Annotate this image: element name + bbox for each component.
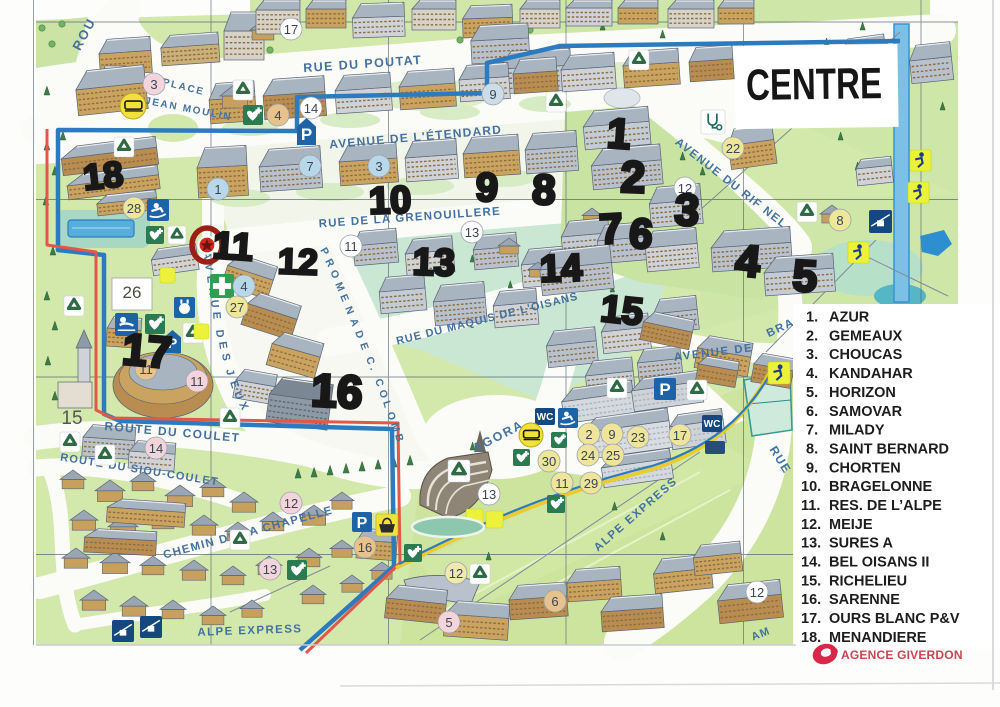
svg-text:2.: 2. (806, 328, 818, 344)
svg-text:17.: 17. (801, 611, 821, 627)
svg-text:8: 8 (531, 166, 556, 214)
svg-text:14.: 14. (801, 555, 821, 571)
svg-text:5: 5 (445, 615, 452, 630)
svg-text:12: 12 (449, 566, 463, 581)
svg-text:3.: 3. (806, 347, 818, 363)
svg-text:OURS BLANC P&V: OURS BLANC P&V (829, 611, 960, 627)
svg-text:E: E (210, 311, 222, 319)
svg-text:2: 2 (620, 153, 646, 203)
svg-text:14: 14 (304, 101, 318, 116)
svg-text:9: 9 (475, 165, 500, 210)
svg-text:13: 13 (482, 487, 496, 502)
svg-text:1: 1 (606, 109, 633, 158)
svg-text:11.: 11. (801, 498, 820, 514)
svg-text:P: P (357, 515, 368, 532)
svg-text:RES. DE L’ALPE: RES. DE L’ALPE (829, 498, 942, 514)
svg-text:1.: 1. (806, 310, 818, 326)
svg-text:22: 22 (726, 141, 740, 156)
svg-text:11: 11 (555, 476, 569, 491)
svg-text:24: 24 (581, 448, 595, 463)
svg-text:13: 13 (412, 241, 456, 284)
svg-text:15: 15 (599, 288, 645, 334)
svg-text:D: D (213, 329, 226, 338)
svg-text:17: 17 (120, 325, 173, 378)
svg-text:12: 12 (277, 240, 318, 282)
svg-text:SURES A: SURES A (829, 536, 893, 552)
svg-text:27: 27 (230, 300, 244, 315)
svg-text:6.: 6. (806, 404, 818, 420)
svg-text:5.: 5. (806, 385, 818, 401)
svg-text:16: 16 (358, 540, 372, 555)
svg-text:P: P (301, 125, 312, 144)
svg-text:P: P (659, 380, 670, 399)
svg-text:WC: WC (704, 419, 721, 430)
svg-text:3: 3 (375, 159, 382, 174)
svg-text:9.: 9. (806, 460, 818, 476)
svg-text:WC: WC (537, 412, 554, 423)
svg-text:SAINT BERNARD: SAINT BERNARD (829, 442, 949, 458)
svg-text:28: 28 (127, 201, 141, 216)
svg-text:6: 6 (551, 594, 558, 609)
svg-text:SARENNE: SARENNE (829, 592, 900, 608)
svg-text:17: 17 (284, 22, 298, 37)
svg-text:3: 3 (150, 77, 157, 92)
svg-text:AGENCE GIVERDON: AGENCE GIVERDON (841, 648, 963, 662)
svg-text:30: 30 (542, 454, 556, 469)
svg-text:8.: 8. (806, 442, 818, 458)
svg-text:MENANDIERE: MENANDIERE (829, 630, 927, 646)
svg-text:11: 11 (344, 239, 358, 254)
svg-text:4: 4 (274, 108, 281, 123)
svg-text:2: 2 (585, 427, 592, 442)
svg-text:25: 25 (606, 448, 620, 463)
svg-text:18: 18 (81, 153, 125, 198)
svg-text:4.: 4. (806, 366, 818, 382)
svg-text:12.: 12. (801, 517, 821, 533)
svg-text:23: 23 (631, 430, 645, 445)
svg-text:16: 16 (310, 364, 364, 419)
svg-text:6: 6 (627, 209, 654, 258)
svg-text:15.: 15. (801, 573, 821, 589)
svg-text:CHOUCAS: CHOUCAS (829, 347, 903, 363)
svg-text:16.: 16. (801, 592, 821, 608)
svg-text:14: 14 (539, 247, 583, 290)
svg-text:13.: 13. (801, 536, 821, 552)
svg-text:GEMEAUX: GEMEAUX (829, 328, 903, 344)
svg-text:CHORTEN: CHORTEN (829, 460, 901, 476)
svg-text:SAMOVAR: SAMOVAR (829, 404, 903, 420)
svg-text:26: 26 (123, 283, 142, 302)
svg-text:15: 15 (61, 408, 82, 429)
svg-text:11: 11 (211, 225, 254, 270)
svg-text:8: 8 (836, 213, 843, 228)
svg-text:9: 9 (489, 87, 496, 102)
svg-text:HORIZON: HORIZON (829, 385, 896, 401)
svg-text:BEL OISANS II: BEL OISANS II (829, 555, 929, 571)
svg-text:7.: 7. (806, 423, 818, 439)
svg-text:17: 17 (673, 428, 687, 443)
svg-text:14: 14 (149, 441, 163, 456)
svg-text:1: 1 (214, 182, 221, 197)
svg-text:7: 7 (306, 159, 313, 174)
svg-text:12: 12 (284, 496, 298, 511)
svg-text:11: 11 (190, 374, 204, 389)
svg-text:18.: 18. (801, 630, 821, 646)
svg-text:MILADY: MILADY (829, 423, 885, 439)
svg-text:10: 10 (368, 179, 412, 222)
svg-text:12: 12 (750, 585, 764, 600)
svg-text:KANDAHAR: KANDAHAR (829, 366, 913, 382)
svg-text:AZUR: AZUR (829, 310, 870, 326)
svg-text:4: 4 (240, 279, 247, 294)
svg-text:7: 7 (598, 204, 624, 252)
svg-text:13: 13 (465, 225, 479, 240)
svg-text:10.: 10. (801, 479, 821, 495)
svg-text:3: 3 (673, 185, 700, 235)
svg-text:13: 13 (263, 562, 277, 577)
svg-text:9: 9 (608, 427, 615, 442)
svg-text:5: 5 (791, 251, 818, 301)
svg-text:29: 29 (584, 476, 598, 491)
svg-text:CENTRE: CENTRE (746, 59, 883, 110)
svg-text:MEIJE: MEIJE (829, 517, 873, 533)
svg-text:RICHELIEU: RICHELIEU (829, 573, 907, 589)
svg-text:U: U (208, 299, 221, 308)
svg-text:BRAGELONNE: BRAGELONNE (829, 479, 932, 495)
